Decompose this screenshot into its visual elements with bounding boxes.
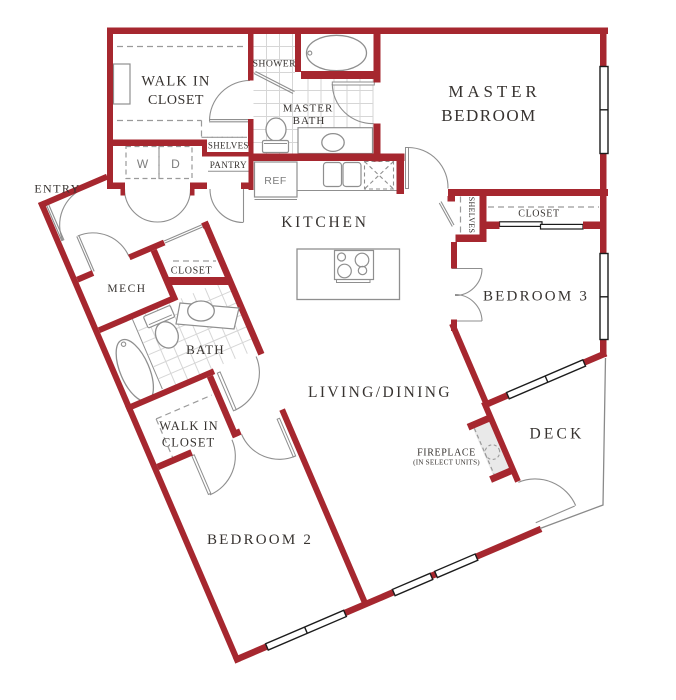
svg-text:(IN SELECT UNITS): (IN SELECT UNITS): [413, 459, 480, 467]
svg-text:WALK IN: WALK IN: [141, 74, 210, 90]
svg-text:FIREPLACE: FIREPLACE: [417, 448, 476, 459]
svg-text:WALK IN: WALK IN: [159, 419, 218, 433]
svg-text:PANTRY: PANTRY: [210, 160, 247, 170]
svg-text:SHELVES: SHELVES: [467, 197, 476, 233]
svg-text:CLOSET: CLOSET: [518, 209, 559, 220]
svg-text:DECK: DECK: [530, 425, 585, 442]
svg-text:REF: REF: [264, 175, 287, 187]
svg-text:CLOSET: CLOSET: [162, 436, 215, 450]
svg-text:BEDROOM 3: BEDROOM 3: [483, 288, 589, 304]
svg-text:BEDROOM 2: BEDROOM 2: [207, 532, 313, 548]
svg-text:ENTRY: ENTRY: [34, 182, 80, 196]
svg-text:KITCHEN: KITCHEN: [281, 214, 369, 231]
svg-text:SHOWER: SHOWER: [253, 59, 296, 70]
svg-text:BATH: BATH: [186, 342, 225, 357]
svg-text:BATH: BATH: [293, 115, 326, 127]
svg-text:CLOSET: CLOSET: [171, 266, 212, 277]
svg-text:SHELVES: SHELVES: [208, 141, 249, 151]
svg-text:CLOSET: CLOSET: [148, 93, 204, 108]
svg-text:D: D: [171, 157, 180, 171]
svg-text:BEDROOM: BEDROOM: [441, 106, 537, 125]
svg-text:MASTER: MASTER: [283, 103, 334, 115]
svg-text:LIVING/DINING: LIVING/DINING: [308, 384, 452, 401]
svg-text:W: W: [137, 157, 149, 171]
svg-text:MECH: MECH: [107, 283, 146, 295]
svg-text:MASTER: MASTER: [448, 82, 540, 101]
